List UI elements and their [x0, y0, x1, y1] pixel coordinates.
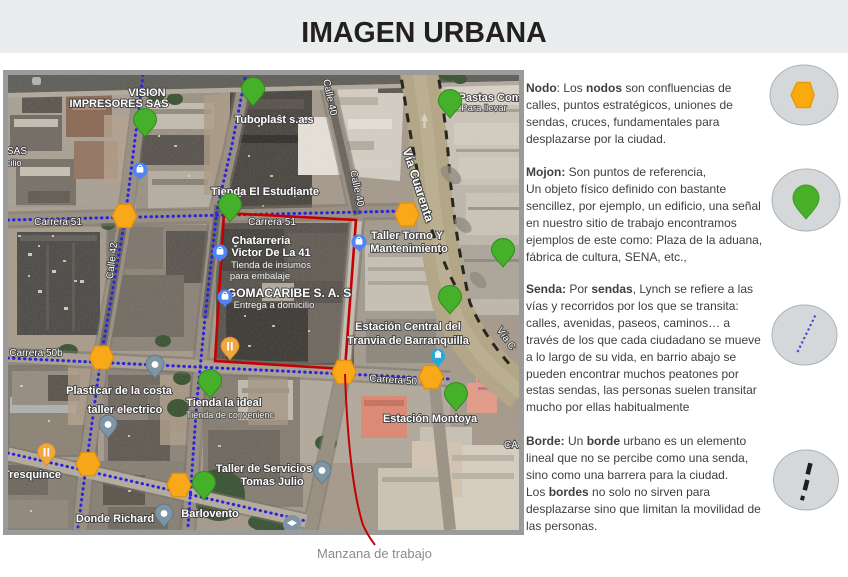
svg-text:Tienda de insumos: Tienda de insumos: [231, 260, 311, 271]
svg-text:Taller de Servicios: Taller de Servicios: [216, 463, 312, 475]
svg-text:Pastas Com: Pastas Com: [459, 92, 519, 104]
svg-text:IMPRESORES SAS: IMPRESORES SAS: [69, 98, 168, 110]
svg-text:Mantenimiento: Mantenimiento: [370, 243, 448, 255]
svg-text:Entrega a domicilio: Entrega a domicilio: [234, 300, 315, 311]
svg-text:Barlovento: Barlovento: [181, 508, 239, 520]
svg-text:Para llevar: Para llevar: [461, 103, 506, 114]
svg-text:Carrera 51: Carrera 51: [34, 217, 82, 228]
svg-text:Donde Richard: Donde Richard: [76, 513, 154, 525]
svg-text:Estación Montoya: Estación Montoya: [383, 413, 478, 425]
svg-text:Tuboplast s.a.s: Tuboplast s.a.s: [234, 114, 313, 126]
svg-text:Carrera 50b: Carrera 50b: [9, 348, 63, 359]
svg-text:Carrera 51: Carrera 51: [248, 217, 296, 228]
svg-text:cilio: cilio: [8, 158, 22, 168]
svg-text:SAS: SAS: [8, 146, 27, 157]
svg-text:Tresquince: Tresquince: [8, 469, 61, 481]
svg-text:GOMACARIBE S. A. S: GOMACARIBE S. A. S: [227, 286, 351, 300]
svg-text:CA: CA: [504, 440, 518, 451]
svg-text:Tienda la ideal: Tienda la ideal: [186, 397, 262, 409]
svg-text:Tienda de convenienc: Tienda de convenienc: [186, 410, 274, 420]
svg-text:Plasticar de la costa: Plasticar de la costa: [66, 385, 173, 397]
svg-text:Taller Torno Y: Taller Torno Y: [371, 230, 444, 242]
svg-text:Victor De La 41: Victor De La 41: [231, 247, 310, 259]
svg-text:Estación Central del: Estación Central del: [355, 321, 461, 333]
svg-text:Chatarreria: Chatarreria: [232, 235, 292, 247]
svg-text:para embalaje: para embalaje: [230, 271, 290, 282]
svg-text:Tranvia de Barranquilla: Tranvia de Barranquilla: [347, 335, 470, 347]
svg-text:taller electrico: taller electrico: [88, 404, 163, 416]
svg-text:Tomas Julio: Tomas Julio: [240, 476, 304, 488]
